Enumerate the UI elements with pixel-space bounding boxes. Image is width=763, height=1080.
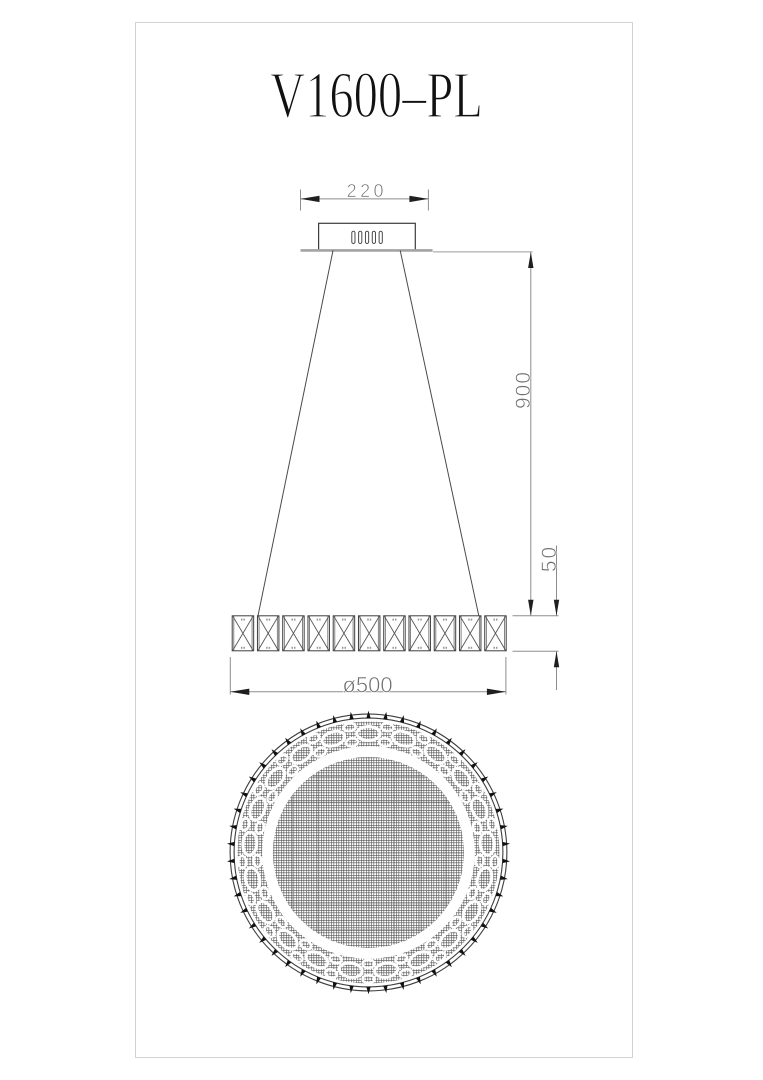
svg-text:900: 900	[512, 371, 535, 409]
svg-text:V1600–PL: V1600–PL	[270, 58, 483, 132]
svg-text:50: 50	[538, 545, 561, 572]
svg-text:220: 220	[347, 181, 387, 201]
svg-text:ø500: ø500	[342, 673, 392, 698]
